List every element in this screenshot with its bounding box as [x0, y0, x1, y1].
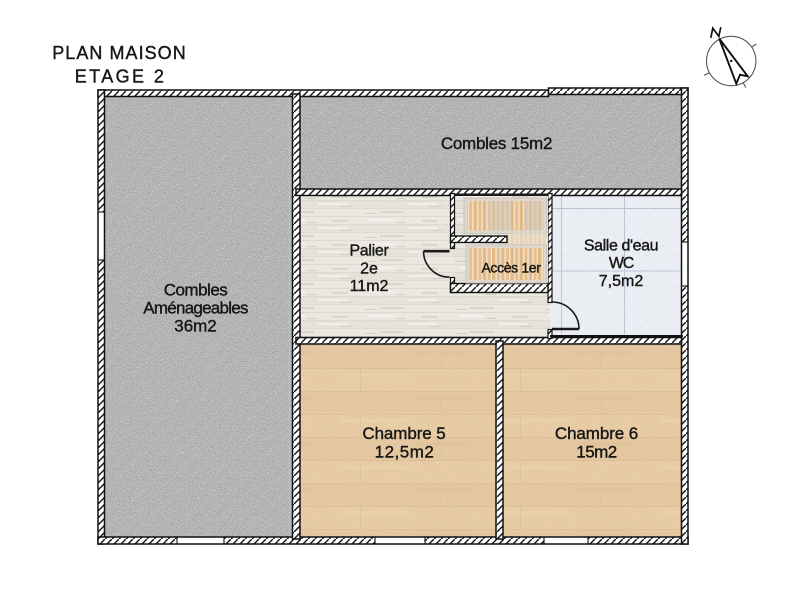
- svg-text:Aménageables: Aménageables: [143, 299, 248, 318]
- svg-text:Chambre 5: Chambre 5: [362, 424, 445, 443]
- svg-text:Palier: Palier: [349, 242, 389, 259]
- svg-text:PLAN MAISON: PLAN MAISON: [52, 43, 187, 63]
- svg-text:12,5m2: 12,5m2: [375, 443, 435, 462]
- svg-text:Chambre 6: Chambre 6: [555, 424, 638, 443]
- svg-text:Combles: Combles: [164, 281, 228, 300]
- svg-text:Combles 15m2: Combles 15m2: [441, 134, 552, 153]
- svg-text:11m2: 11m2: [350, 278, 389, 295]
- svg-text:15m2: 15m2: [576, 443, 617, 462]
- svg-text:7,5m2: 7,5m2: [599, 273, 644, 290]
- svg-text:WC: WC: [609, 255, 634, 272]
- svg-text:Salle d'eau: Salle d'eau: [584, 237, 658, 254]
- svg-text:ETAGE 2: ETAGE 2: [75, 67, 167, 87]
- svg-text:36m2: 36m2: [174, 316, 217, 335]
- svg-text:Accès 1er: Accès 1er: [481, 259, 541, 275]
- svg-text:2e: 2e: [360, 260, 378, 277]
